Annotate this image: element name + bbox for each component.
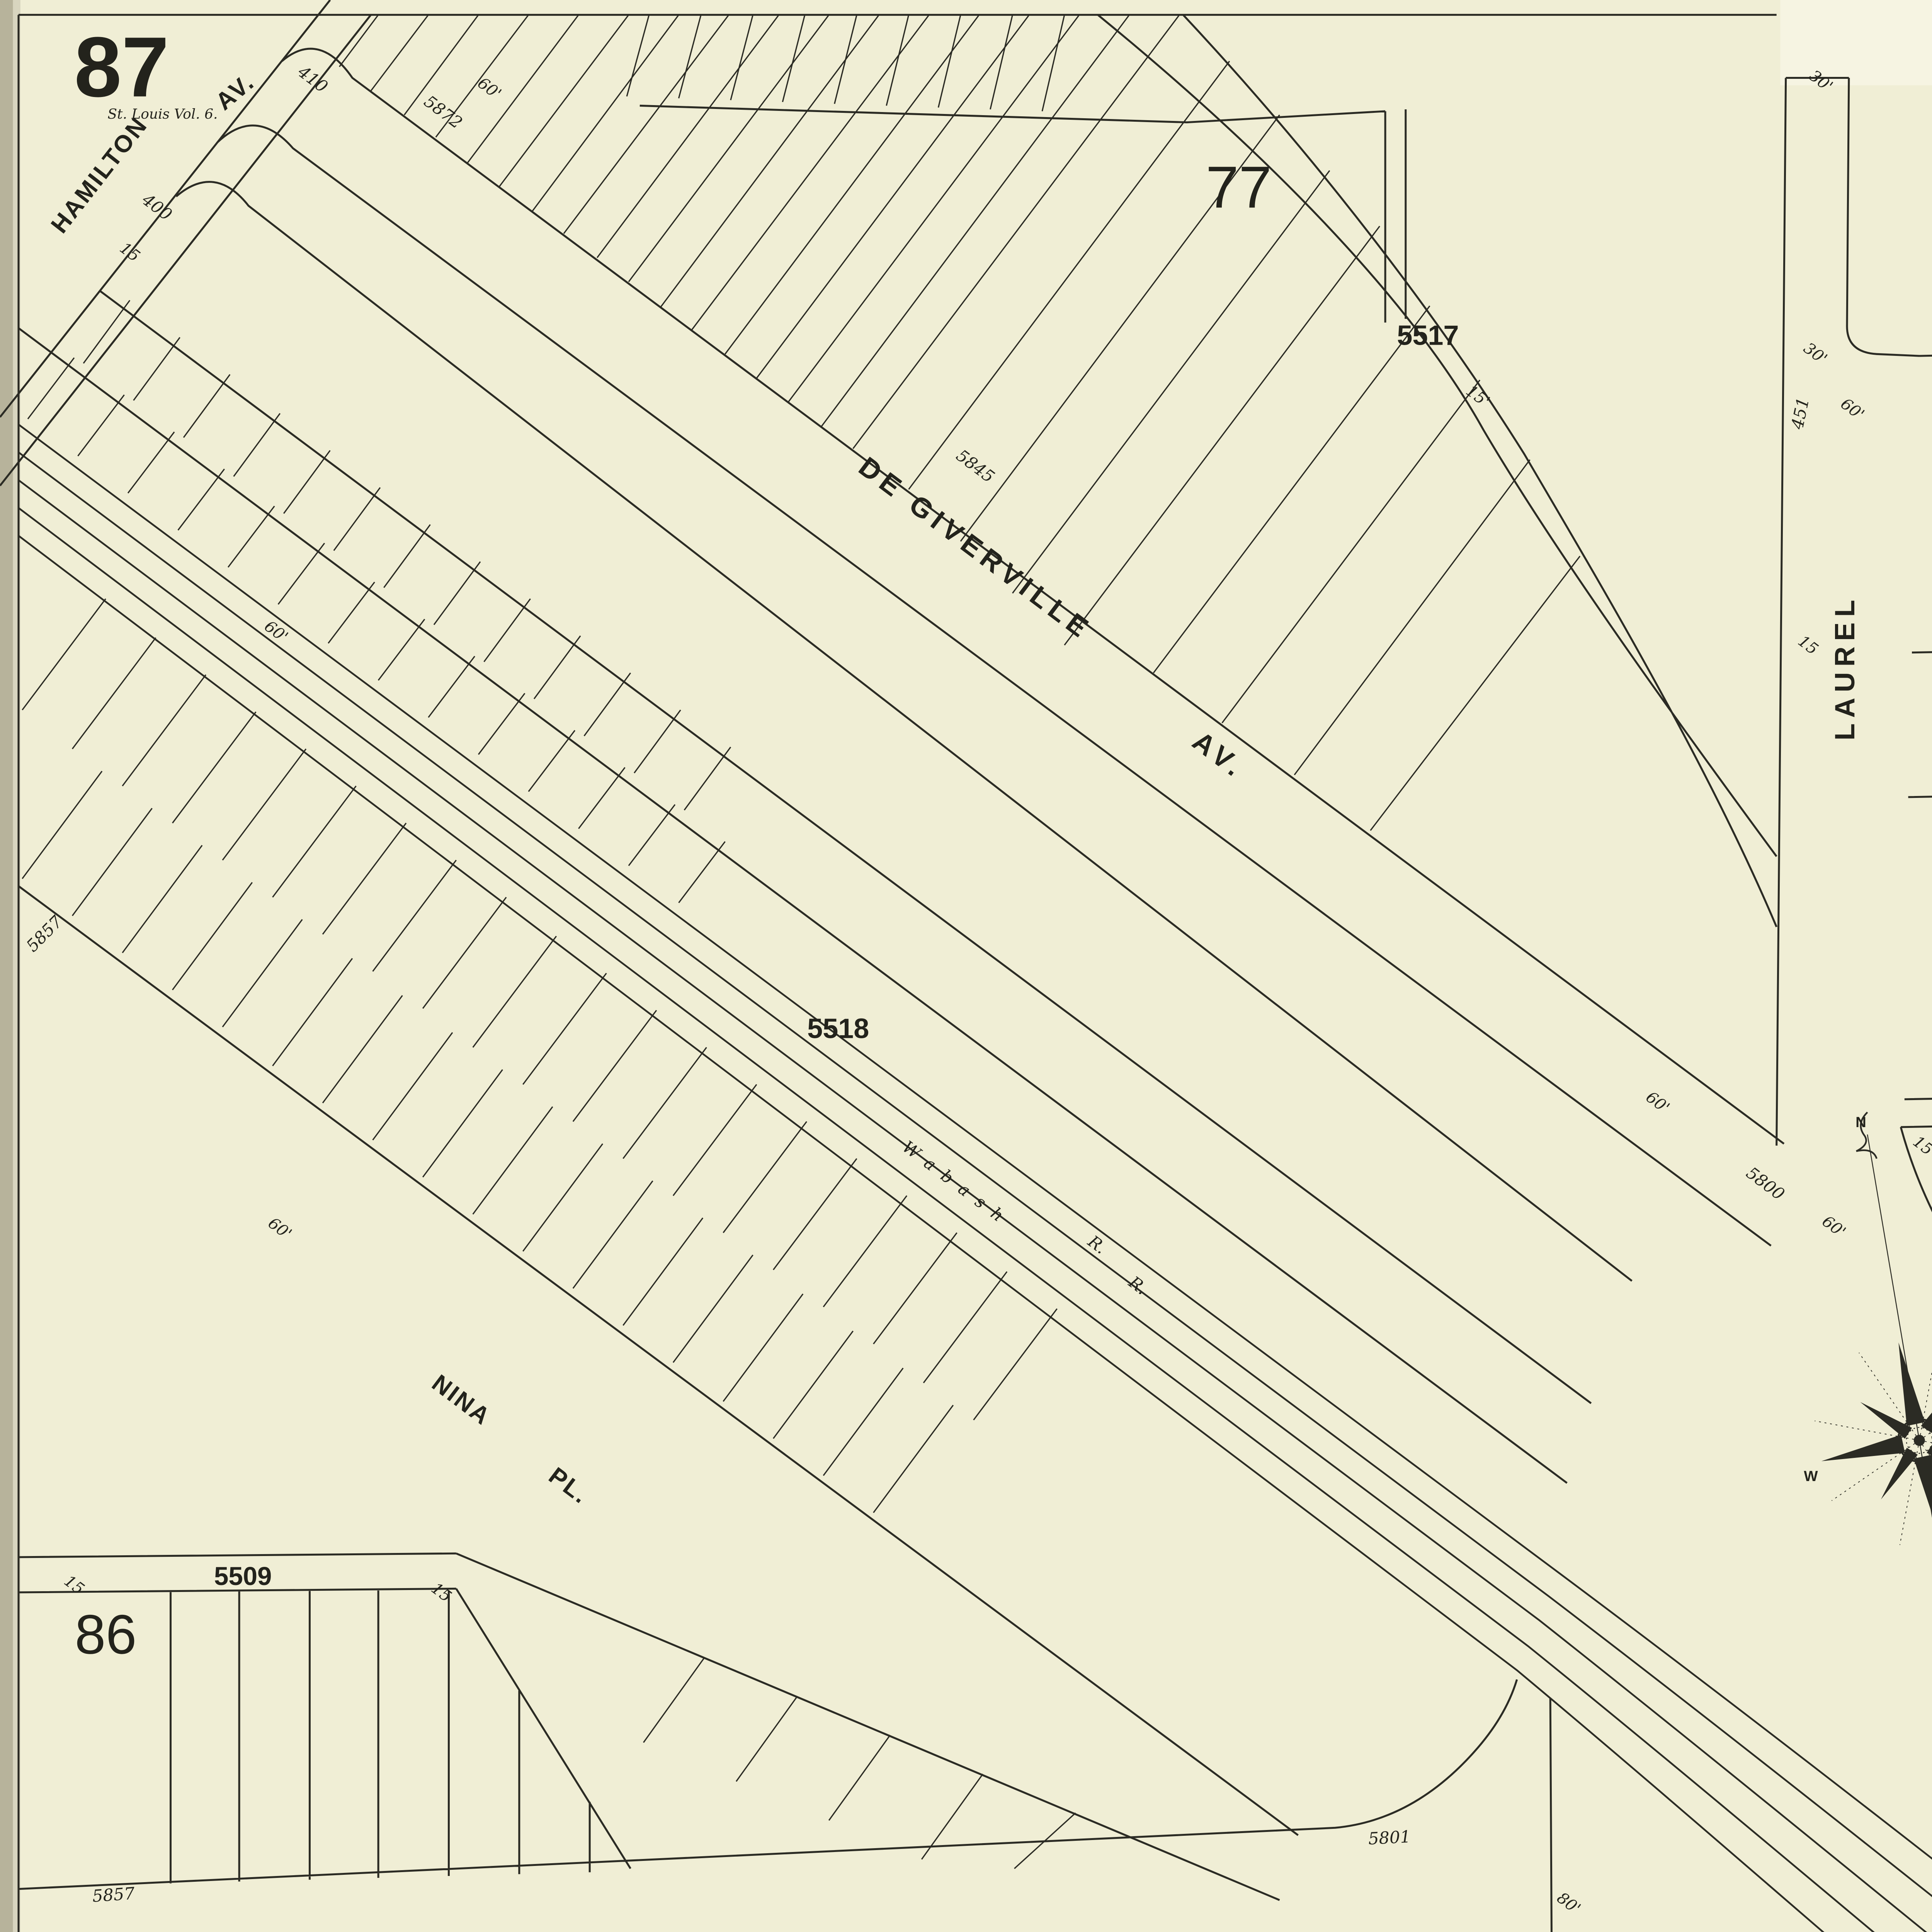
- sanborn-map-page: N E W S 87 St. Louis Vol. 6. 77 86 88 10…: [0, 0, 1932, 1932]
- block-number-5518: 5518: [807, 1014, 869, 1044]
- address-5857-waterman: 5857: [92, 1884, 136, 1906]
- street-label-laurel-north: LAUREL: [1830, 594, 1861, 740]
- block-number-5509: 5509: [214, 1562, 272, 1591]
- adjacent-sheet-77: 77: [1206, 154, 1272, 220]
- address-5801-waterman: 5801: [1368, 1827, 1411, 1849]
- block-number-5517: 5517: [1397, 320, 1459, 351]
- volume-note: St. Louis Vol. 6.: [107, 106, 218, 122]
- sanborn-map-sheet: N E W S 87 St. Louis Vol. 6. 77 86 88 10…: [0, 0, 1932, 1932]
- adjacent-sheet-86: 86: [75, 1603, 136, 1665]
- compass-west-label: W: [1804, 1468, 1820, 1485]
- scan-edge: [0, 0, 13, 1932]
- compass-north-label: N: [1855, 1114, 1868, 1131]
- paper-background: [0, 0, 1932, 1932]
- sheet-number: 87: [74, 19, 169, 115]
